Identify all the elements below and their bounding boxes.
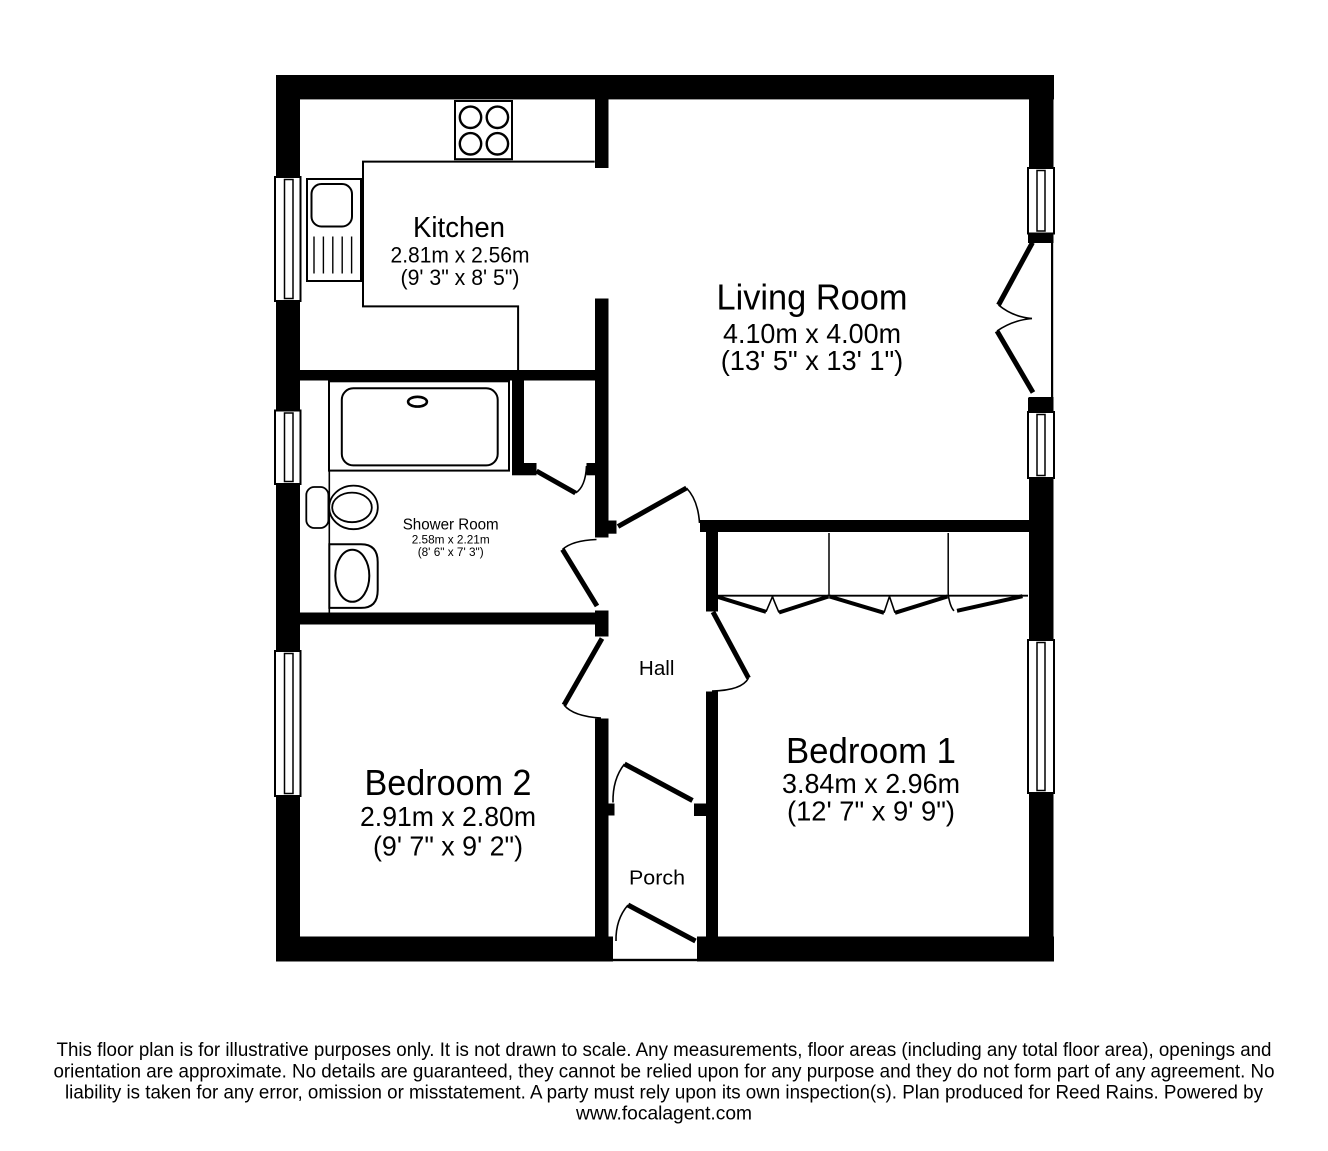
svg-text:Bedroom 1: Bedroom 1 (786, 730, 956, 771)
svg-text:liability is taken for any err: liability is taken for any error, omissi… (65, 1081, 1263, 1103)
svg-text:orientation are approximate. N: orientation are approximate. No details … (54, 1060, 1275, 1082)
svg-text:(8' 6" x 7' 3"): (8' 6" x 7' 3") (418, 545, 484, 559)
svg-text:Kitchen: Kitchen (413, 212, 505, 244)
svg-text:Porch: Porch (629, 867, 685, 890)
svg-text:2.91m x 2.80m: 2.91m x 2.80m (360, 801, 536, 832)
svg-text:Living Room: Living Room (717, 277, 908, 318)
svg-text:(13' 5" x 13' 1"): (13' 5" x 13' 1") (721, 345, 904, 376)
svg-text:Hall: Hall (639, 657, 675, 680)
svg-text:Bedroom 2: Bedroom 2 (365, 762, 532, 803)
svg-text:2.81m x 2.56m: 2.81m x 2.56m (391, 242, 530, 267)
svg-text:This floor plan is for illustr: This floor plan is for illustrative purp… (57, 1039, 1272, 1061)
svg-text:(9' 7" x 9' 2"): (9' 7" x 9' 2") (373, 831, 523, 862)
svg-text:Shower Room: Shower Room (403, 516, 499, 533)
svg-text:3.84m x 2.96m: 3.84m x 2.96m (782, 768, 960, 799)
svg-text:(9' 3" x 8' 5"): (9' 3" x 8' 5") (401, 265, 520, 290)
svg-text:(12' 7" x 9' 9"): (12' 7" x 9' 9") (787, 796, 955, 827)
svg-text:www.focalagent.com: www.focalagent.com (575, 1102, 752, 1124)
